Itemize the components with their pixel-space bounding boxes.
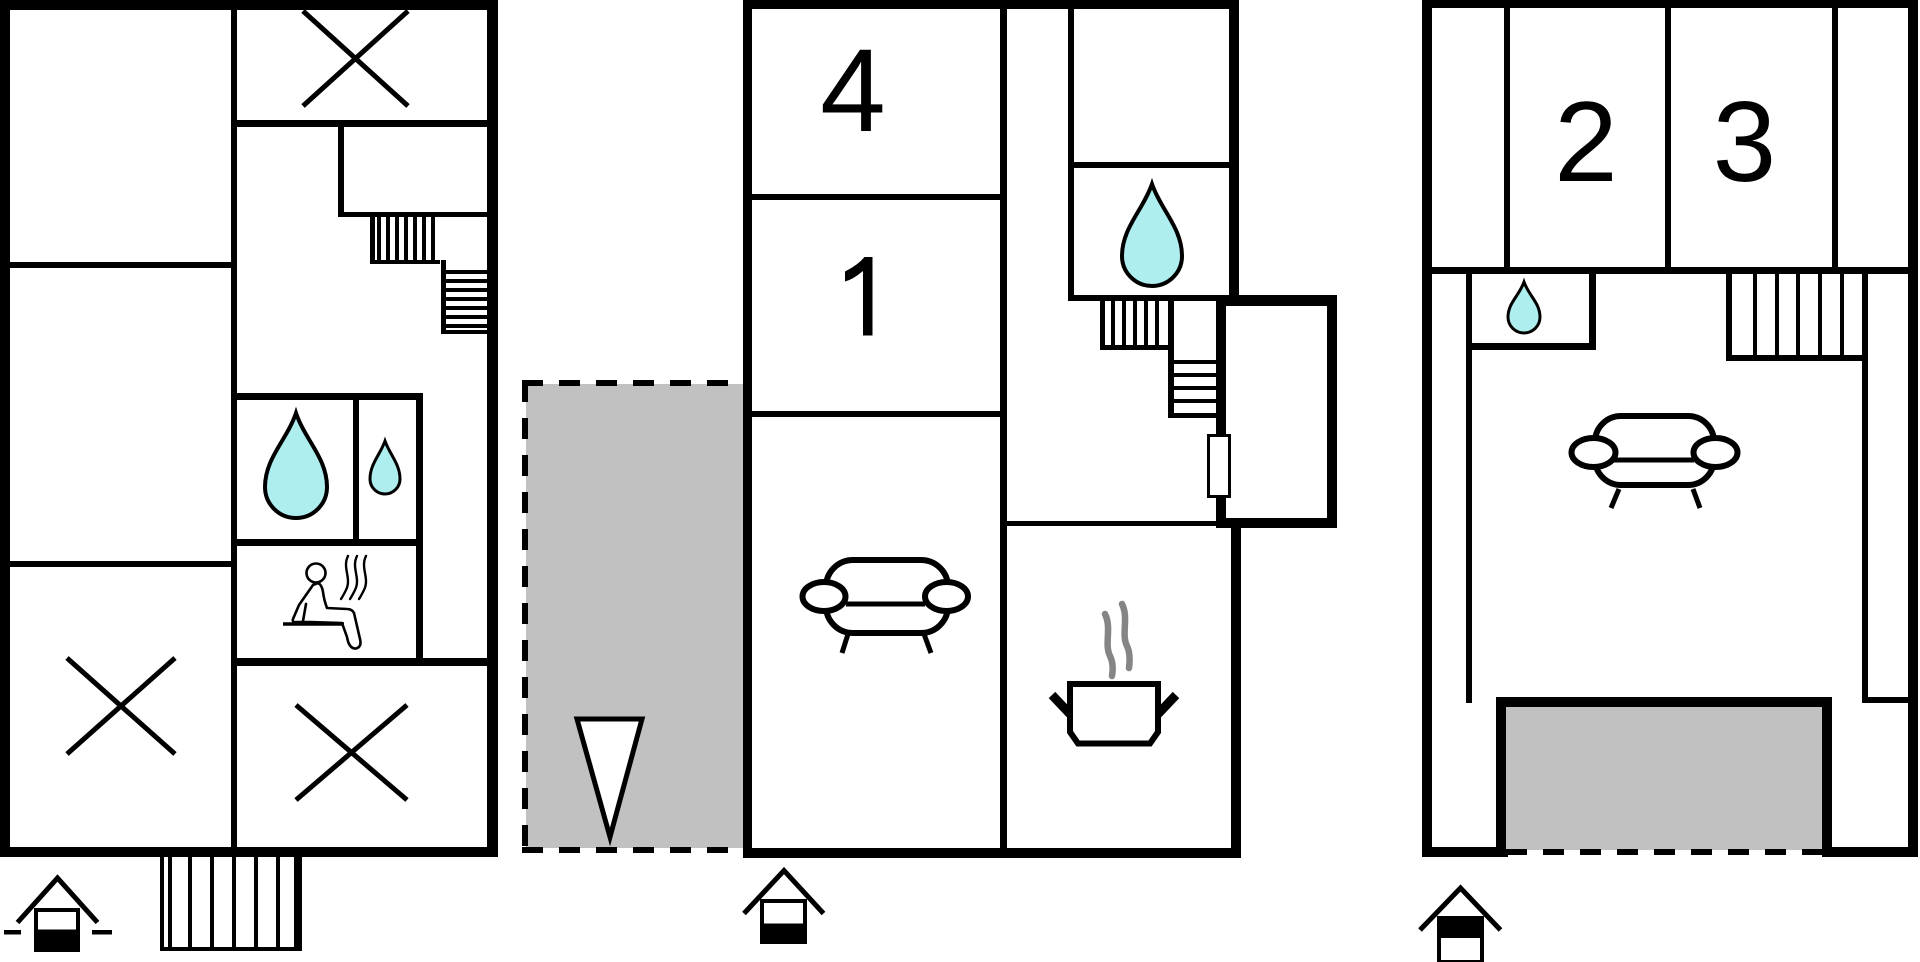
svg-text:2: 2 [1554, 79, 1617, 206]
svg-text:3: 3 [1713, 79, 1776, 206]
svg-text:4: 4 [820, 25, 886, 157]
